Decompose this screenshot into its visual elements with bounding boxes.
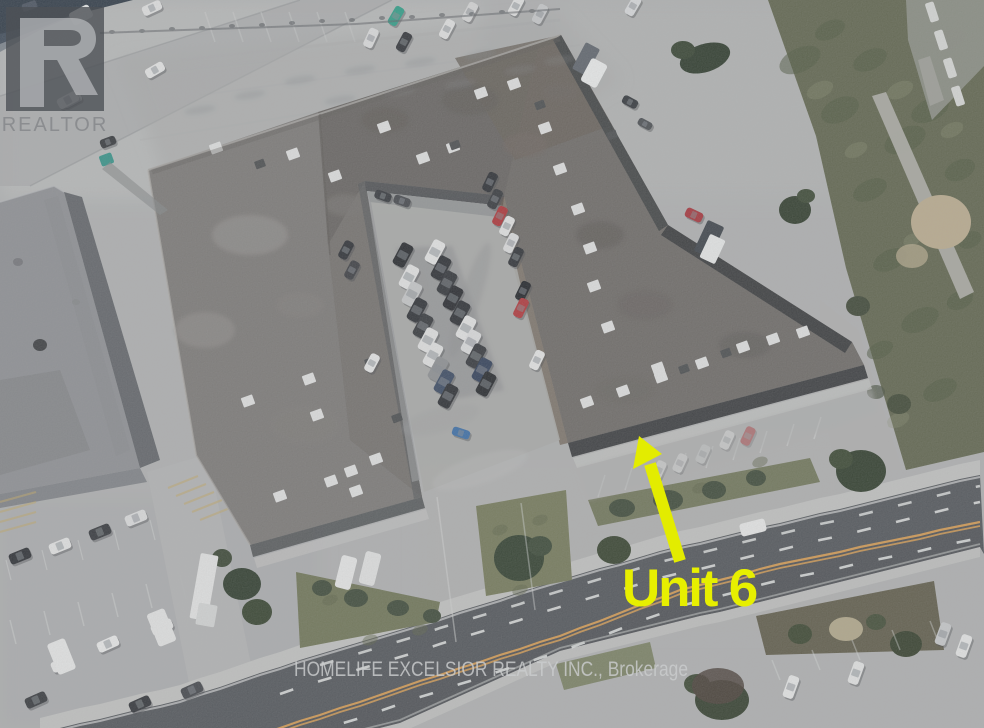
svg-text:REALTOR: REALTOR — [2, 114, 109, 136]
svg-text:Unit 6: Unit 6 — [622, 559, 757, 618]
svg-text:HOMELIFE EXCELSIOR REALTY INC.: HOMELIFE EXCELSIOR REALTY INC., Brokerag… — [294, 658, 688, 681]
